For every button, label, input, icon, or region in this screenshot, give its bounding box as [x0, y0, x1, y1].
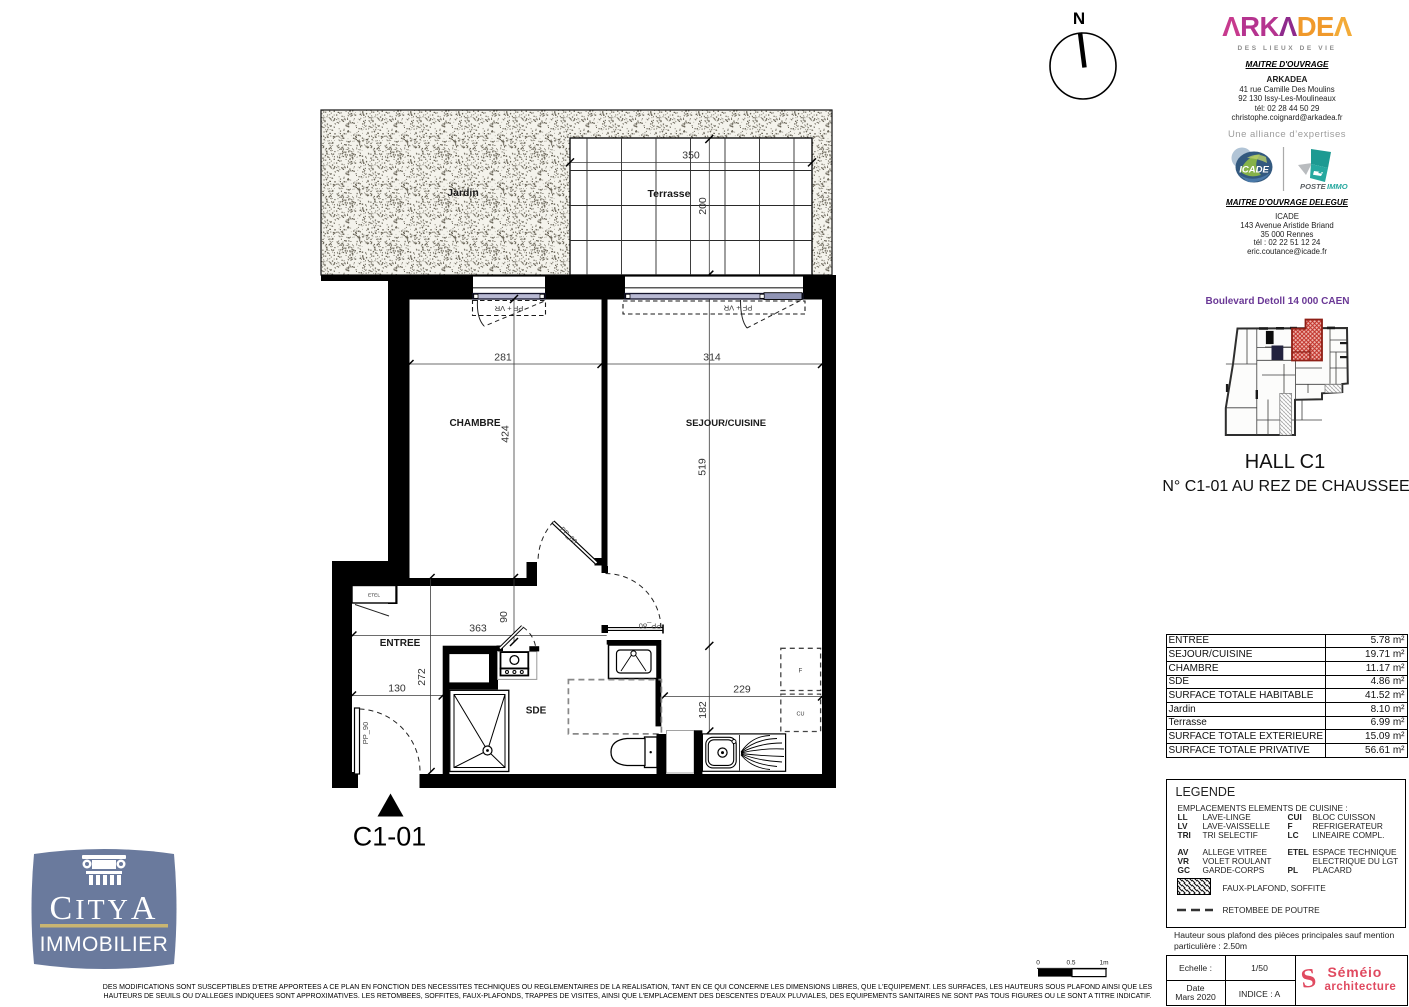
svg-text:1m: 1m	[1099, 960, 1108, 967]
svg-text:ETEL: ETEL	[368, 593, 380, 599]
svg-text:424: 424	[500, 425, 512, 443]
svg-text:Jardin: Jardin	[447, 187, 479, 199]
svg-text:PP_90: PP_90	[361, 722, 370, 745]
svg-text:SEJOUR/CUISINE: SEJOUR/CUISINE	[686, 418, 766, 429]
svg-text:CHAMBRE: CHAMBRE	[449, 418, 500, 429]
svg-text:POSTE: POSTE	[1300, 182, 1327, 191]
svg-text:PP_80: PP_80	[639, 622, 662, 631]
svg-text:0.5: 0.5	[1066, 960, 1075, 967]
svg-text:IMMOBILIER: IMMOBILIER	[40, 933, 169, 956]
svg-text:130: 130	[388, 683, 406, 695]
svg-text:C1-01: C1-01	[353, 822, 427, 852]
svg-text:182: 182	[697, 701, 709, 719]
svg-text:ICADE: ICADE	[1239, 165, 1269, 176]
svg-text:314: 314	[703, 352, 721, 364]
svg-text:Terrasse: Terrasse	[647, 188, 690, 200]
svg-text:229: 229	[733, 684, 751, 696]
svg-text:IMMO: IMMO	[1327, 182, 1348, 191]
svg-text:272: 272	[416, 668, 428, 686]
svg-text:F: F	[799, 669, 803, 675]
svg-text:363: 363	[469, 623, 487, 635]
svg-text:CITYA: CITYA	[50, 890, 159, 927]
svg-text:SDE: SDE	[526, 706, 547, 717]
svg-text:519: 519	[697, 458, 709, 476]
svg-text:281: 281	[494, 352, 512, 364]
svg-text:PP_80: PP_80	[558, 526, 578, 546]
svg-text:200: 200	[697, 197, 709, 215]
svg-text:0: 0	[1036, 960, 1040, 967]
svg-text:N: N	[1073, 9, 1085, 28]
svg-text:PF + VR: PF + VR	[723, 304, 752, 313]
svg-text:CU: CU	[797, 712, 805, 718]
svg-text:ENTREE: ENTREE	[380, 638, 421, 649]
svg-text:90: 90	[498, 611, 510, 623]
svg-text:350: 350	[682, 150, 700, 162]
